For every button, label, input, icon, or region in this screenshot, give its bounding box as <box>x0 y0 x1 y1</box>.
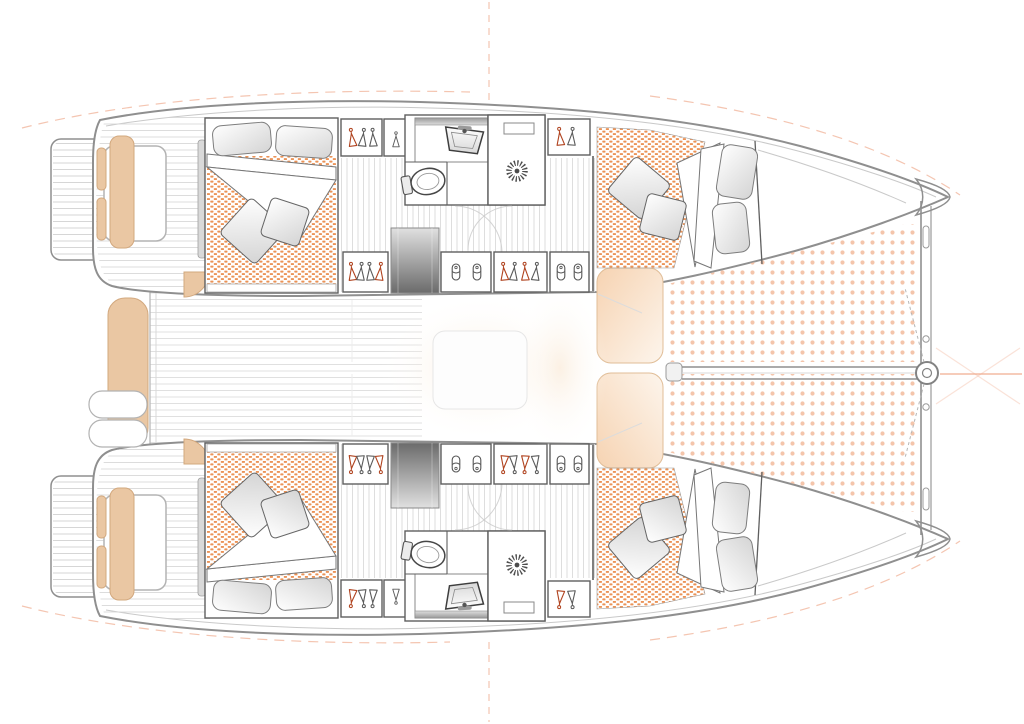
davit <box>89 391 147 418</box>
catamaran-deck-plan <box>0 0 1024 724</box>
furler-icon <box>916 362 938 384</box>
chainplate-slot <box>923 488 929 510</box>
shackle <box>923 336 929 342</box>
bow-guide-marks <box>936 348 1022 404</box>
davit <box>89 420 147 447</box>
salon-table <box>433 331 527 409</box>
chainplate-slot <box>923 226 929 248</box>
shackle <box>923 404 929 410</box>
plan-canvas <box>0 0 1024 724</box>
aft-cockpit-furniture <box>89 298 148 447</box>
